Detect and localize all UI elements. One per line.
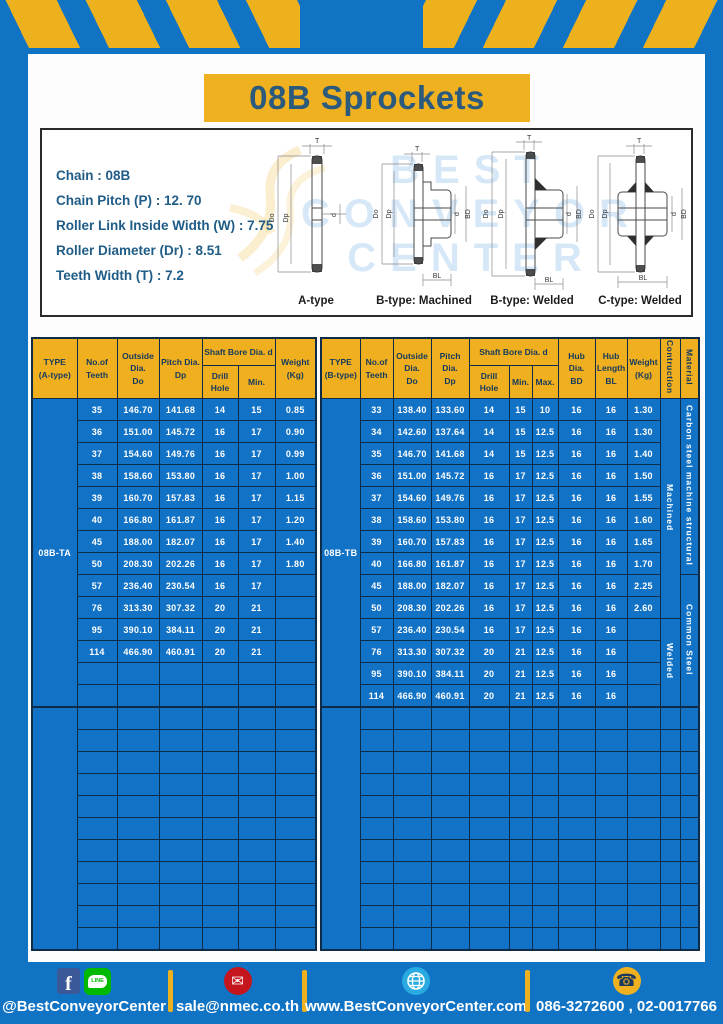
table-cell: [275, 840, 316, 862]
table-cell: [393, 862, 431, 884]
col-header-pitch-dia: Pitch Dia. Dp: [431, 338, 469, 399]
table-cell: 33: [360, 399, 393, 421]
table-cell: [431, 906, 469, 928]
table-cell: 20: [202, 641, 238, 663]
table-cell: [77, 796, 117, 818]
table-cell: [660, 730, 680, 752]
table-cell: 16: [558, 663, 595, 685]
table-cell: [558, 730, 595, 752]
table-cell: [627, 730, 660, 752]
type-group-label: 08B-TB: [321, 399, 360, 708]
table-cell: [558, 840, 595, 862]
table-cell: 15: [509, 443, 532, 465]
table-cell: 16: [595, 553, 627, 575]
table-cell: 153.80: [159, 465, 202, 487]
table-cell: 12.5: [532, 663, 558, 685]
table-cell: [77, 906, 117, 928]
table-cell: 21: [509, 641, 532, 663]
table-cell: [77, 685, 117, 708]
table-cell: 1.30: [627, 399, 660, 421]
title-banner: 08B Sprockets: [204, 74, 530, 122]
table-cell: [77, 774, 117, 796]
table-cell: 137.64: [431, 421, 469, 443]
table-cell: [660, 707, 680, 730]
footer-email: ✉ sale@nmec.co.th: [173, 966, 302, 1020]
table-cell: [509, 928, 532, 951]
table-cell: [360, 752, 393, 774]
svg-text:BD: BD: [465, 209, 472, 219]
table-cell: 12.5: [532, 531, 558, 553]
table-cell: [238, 774, 275, 796]
table-cell: 12.5: [532, 641, 558, 663]
table-cell: [469, 840, 509, 862]
email-address[interactable]: sale@nmec.co.th: [176, 998, 299, 1015]
table-cell: 16: [202, 487, 238, 509]
table-cell: 141.68: [159, 399, 202, 421]
table-cell: [202, 774, 238, 796]
col-header-type: TYPE (A-type): [32, 338, 77, 399]
table-cell: 1.50: [627, 465, 660, 487]
table-cell: 157.83: [431, 531, 469, 553]
table-cell: [159, 730, 202, 752]
table-cell: [77, 752, 117, 774]
table-cell: 16: [595, 663, 627, 685]
table-cell: 1.60: [627, 509, 660, 531]
table-cell: [238, 685, 275, 708]
material-label: Common Steel: [680, 575, 699, 708]
table-cell: 45: [360, 575, 393, 597]
table-cell: 15: [238, 399, 275, 421]
table-cell: 166.80: [117, 509, 159, 531]
table-cell: 466.90: [117, 641, 159, 663]
table-cell: 138.40: [393, 399, 431, 421]
table-cell: [275, 619, 316, 641]
table-cell: 16: [558, 421, 595, 443]
table-cell: [680, 840, 699, 862]
table-cell: 17: [509, 465, 532, 487]
table-cell: [680, 796, 699, 818]
table-cell: 1.40: [627, 443, 660, 465]
table-cell: 20: [469, 685, 509, 708]
table-cell: 36: [360, 465, 393, 487]
table-cell: [660, 928, 680, 951]
footer-social: f LINE @BestConveyorCenter: [0, 966, 168, 1020]
table-cell: 145.72: [159, 421, 202, 443]
table-cell: [159, 928, 202, 951]
table-row: 45188.00182.07161712.516162.25Common Ste…: [321, 575, 699, 597]
table-cell: [431, 774, 469, 796]
table-cell: [660, 884, 680, 906]
table-cell: [77, 707, 117, 730]
table-cell: [532, 707, 558, 730]
table-cell: [558, 774, 595, 796]
table-cell: [393, 774, 431, 796]
construction-label: Welded: [660, 619, 680, 708]
table-cell: [202, 752, 238, 774]
a-type-table: TYPE (A-type) No.of Teeth Outside Dia. D…: [31, 337, 317, 951]
table-cell: [275, 663, 316, 685]
table-cell: [595, 774, 627, 796]
table-cell: 12.5: [532, 421, 558, 443]
table-cell: 17: [509, 487, 532, 509]
table-cell: [509, 707, 532, 730]
table-cell: [660, 840, 680, 862]
table-cell: [117, 862, 159, 884]
table-cell: [393, 840, 431, 862]
table-cell: [558, 707, 595, 730]
svg-text:T: T: [527, 135, 532, 142]
table-cell: [117, 928, 159, 951]
table-cell: [238, 928, 275, 951]
table-cell: [117, 906, 159, 928]
table-cell: [532, 774, 558, 796]
sprocket-drawings: T Do Dp d A-type: [264, 134, 692, 314]
table-cell: [595, 862, 627, 884]
table-cell: 16: [595, 531, 627, 553]
table-cell: [595, 752, 627, 774]
table-cell: 202.26: [431, 597, 469, 619]
table-cell: 1.65: [627, 531, 660, 553]
table-cell: 14: [469, 443, 509, 465]
table-cell: 466.90: [393, 685, 431, 708]
drawing-c-type-welded: T Do Dp d BD: [588, 134, 692, 314]
col-header-teeth: No.of Teeth: [77, 338, 117, 399]
table-cell: [558, 884, 595, 906]
table-cell: 16: [469, 553, 509, 575]
table-cell: 146.70: [117, 399, 159, 421]
website-url[interactable]: www.BestConveyorCenter.com: [305, 998, 527, 1015]
table-cell: [275, 707, 316, 730]
table-cell: 16: [558, 509, 595, 531]
table-row: [321, 707, 699, 730]
table-cell: [360, 774, 393, 796]
spec-line: Chain Pitch (P) : 12. 70: [56, 189, 273, 214]
table-cell: [680, 774, 699, 796]
col-header-shaft-bore: Shaft Bore Dia. d: [202, 338, 275, 366]
table-cell: [532, 796, 558, 818]
table-cell: [595, 818, 627, 840]
table-cell: [159, 796, 202, 818]
table-cell: 35: [360, 443, 393, 465]
table-cell: [431, 862, 469, 884]
table-cell: 95: [360, 663, 393, 685]
mail-icon[interactable]: ✉: [224, 967, 252, 995]
table-cell: 384.11: [431, 663, 469, 685]
table-row: [321, 862, 699, 884]
globe-icon[interactable]: [402, 967, 430, 995]
table-cell: 133.60: [431, 399, 469, 421]
table-cell: [680, 707, 699, 730]
table-cell: [558, 928, 595, 951]
table-cell: [275, 575, 316, 597]
table-cell: 460.91: [159, 641, 202, 663]
table-cell: [431, 928, 469, 951]
spec-line: Roller Link Inside Width (W) : 7.75: [56, 214, 273, 239]
table-cell: [595, 707, 627, 730]
phone-icon[interactable]: ☎: [613, 967, 641, 995]
table-cell: [431, 752, 469, 774]
table-cell: [509, 840, 532, 862]
table-cell: [680, 884, 699, 906]
table-cell: 39: [77, 487, 117, 509]
table-cell: 230.54: [431, 619, 469, 641]
table-cell: [393, 707, 431, 730]
table-cell: 154.60: [117, 443, 159, 465]
table-cell: [595, 796, 627, 818]
table-cell: [275, 597, 316, 619]
table-row: [321, 884, 699, 906]
table-cell: [627, 663, 660, 685]
table-cell: 17: [509, 509, 532, 531]
col-header-outside-dia: Outside Dia. Do: [117, 338, 159, 399]
table-cell: [202, 906, 238, 928]
table-cell: 1.55: [627, 487, 660, 509]
table-cell: 160.70: [117, 487, 159, 509]
table-cell: 182.07: [159, 531, 202, 553]
table-cell: 21: [238, 619, 275, 641]
table-cell: 0.99: [275, 443, 316, 465]
table-cell: 390.10: [117, 619, 159, 641]
table-cell: [393, 752, 431, 774]
table-cell: [680, 818, 699, 840]
table-row: [32, 707, 316, 730]
table-cell: [532, 730, 558, 752]
table-cell: [202, 707, 238, 730]
table-cell: [393, 884, 431, 906]
footer-phone: ☎ 086-3272600 , 02-0017766: [530, 966, 723, 1020]
table-cell: [393, 906, 431, 928]
svg-text:d: d: [671, 212, 678, 216]
table-cell: 0.90: [275, 421, 316, 443]
table-cell: 45: [77, 531, 117, 553]
table-cell: 16: [558, 399, 595, 421]
table-row: [321, 752, 699, 774]
col-header-weight: Weight (Kg): [275, 338, 316, 399]
table-cell: 146.70: [393, 443, 431, 465]
footer-website: www.BestConveyorCenter.com: [307, 966, 525, 1020]
table-cell: [238, 752, 275, 774]
table-cell: [275, 685, 316, 708]
svg-text:Do: Do: [373, 209, 380, 218]
svg-text:BL: BL: [639, 275, 648, 282]
table-cell: 16: [558, 443, 595, 465]
table-cell: [469, 928, 509, 951]
table-cell: [469, 818, 509, 840]
table-cell: 161.87: [431, 553, 469, 575]
table-cell: 158.60: [117, 465, 159, 487]
table-row: 36151.00145.72161712.516161.50: [321, 465, 699, 487]
table-cell: [360, 796, 393, 818]
table-cell: [627, 796, 660, 818]
table-cell: [509, 774, 532, 796]
table-cell: [627, 752, 660, 774]
table-cell: 14: [469, 421, 509, 443]
col-header-hub-length: Hub Length BL: [595, 338, 627, 399]
table-cell: 16: [595, 509, 627, 531]
table-cell: 16: [595, 443, 627, 465]
drawing-a-type: T Do Dp d A-type: [264, 134, 368, 314]
table-row: 37154.60149.76161712.516161.55: [321, 487, 699, 509]
table-cell: [159, 685, 202, 708]
table-cell: 166.80: [393, 553, 431, 575]
table-cell: [509, 906, 532, 928]
table-cell: [117, 884, 159, 906]
table-cell: [77, 884, 117, 906]
table-cell: 158.60: [393, 509, 431, 531]
drawing-caption: B-type: Machined: [376, 295, 472, 307]
table-row: 08B-TB33138.40133.6014151016161.30Machin…: [321, 399, 699, 421]
b-type-table: TYPE (B-type) No.of Teeth Outside Dia. D…: [320, 337, 700, 951]
table-cell: [275, 796, 316, 818]
table-row: 40166.80161.87161712.516161.70: [321, 553, 699, 575]
table-cell: 12.5: [532, 487, 558, 509]
table-row: [321, 906, 699, 928]
table-cell: 16: [469, 465, 509, 487]
svg-text:T: T: [637, 138, 642, 145]
table-cell: 16: [202, 575, 238, 597]
col-header-drill-hole: Drill Hole: [469, 366, 509, 399]
material-label: Carbon steel machine structural: [680, 399, 699, 575]
contact-footer: f LINE @BestConveyorCenter ✉ sale@nmec.c…: [0, 962, 723, 1024]
table-cell: [509, 796, 532, 818]
table-cell: 16: [595, 465, 627, 487]
table-cell: 16: [469, 531, 509, 553]
table-cell: [275, 774, 316, 796]
svg-text:Dp: Dp: [498, 209, 505, 218]
table-cell: [627, 906, 660, 928]
drawing-b-type-welded: T Do Dp d BD: [480, 134, 584, 314]
table-row: [321, 730, 699, 752]
table-cell: [469, 796, 509, 818]
table-cell: 12.5: [532, 619, 558, 641]
table-cell: 12.5: [532, 443, 558, 465]
col-header-teeth: No.of Teeth: [360, 338, 393, 399]
table-cell: [660, 906, 680, 928]
table-cell: [627, 619, 660, 641]
table-cell: [360, 840, 393, 862]
svg-text:BD: BD: [576, 209, 583, 219]
type-group-label: 08B-TA: [32, 399, 77, 708]
table-cell: 20: [469, 663, 509, 685]
table-cell: [627, 928, 660, 951]
table-cell: 12.5: [532, 575, 558, 597]
line-app-icon[interactable]: LINE: [84, 968, 111, 995]
table-cell: 17: [238, 575, 275, 597]
table-cell: 16: [558, 597, 595, 619]
table-cell: 16: [202, 443, 238, 465]
drawing-caption: A-type: [298, 295, 334, 307]
table-cell: [117, 752, 159, 774]
table-cell: 390.10: [393, 663, 431, 685]
table-cell: [595, 928, 627, 951]
table-cell: [627, 840, 660, 862]
drawing-b-type-machined: T Do Dp d BD BL: [372, 134, 476, 314]
table-cell: [431, 818, 469, 840]
table-cell: [532, 840, 558, 862]
table-cell: [202, 730, 238, 752]
table-cell: [509, 752, 532, 774]
table-cell: [660, 862, 680, 884]
table-cell: 15: [509, 399, 532, 421]
table-cell: 17: [238, 443, 275, 465]
table-cell: [77, 663, 117, 685]
table-cell: 14: [202, 399, 238, 421]
social-handle[interactable]: @BestConveyorCenter: [2, 998, 166, 1015]
table-cell: [627, 818, 660, 840]
table-cell: 16: [558, 641, 595, 663]
table-cell: [159, 906, 202, 928]
table-cell: 17: [238, 487, 275, 509]
table-cell: 16: [595, 421, 627, 443]
table-cell: [202, 663, 238, 685]
table-cell: [660, 818, 680, 840]
table-cell: 307.32: [431, 641, 469, 663]
svg-text:Dp: Dp: [602, 209, 609, 218]
table-cell: 16: [469, 487, 509, 509]
table-row: [321, 840, 699, 862]
table-cell: 16: [595, 399, 627, 421]
table-cell: [159, 663, 202, 685]
type-group-label: [32, 707, 77, 950]
table-cell: 151.00: [117, 421, 159, 443]
table-cell: 16: [595, 597, 627, 619]
svg-text:BL: BL: [433, 273, 442, 280]
table-cell: [558, 862, 595, 884]
table-cell: [238, 663, 275, 685]
table-cell: 16: [558, 531, 595, 553]
table-cell: [77, 840, 117, 862]
table-cell: [627, 641, 660, 663]
line-badge-label: LINE: [88, 975, 107, 988]
table-cell: [202, 796, 238, 818]
phone-numbers[interactable]: 086-3272600 , 02-0017766: [536, 998, 717, 1015]
table-cell: [117, 774, 159, 796]
table-cell: [360, 818, 393, 840]
table-cell: [238, 884, 275, 906]
table-cell: [393, 730, 431, 752]
table-cell: 313.30: [117, 597, 159, 619]
table-row: [321, 928, 699, 951]
svg-text:BL: BL: [545, 277, 554, 284]
table-cell: 1.80: [275, 553, 316, 575]
table-cell: 17: [509, 553, 532, 575]
table-cell: [159, 840, 202, 862]
table-cell: 16: [469, 619, 509, 641]
table-cell: [660, 774, 680, 796]
col-header-max: Max.: [532, 366, 558, 399]
table-cell: 141.68: [431, 443, 469, 465]
table-cell: [275, 752, 316, 774]
facebook-icon[interactable]: f: [57, 968, 80, 994]
table-cell: 2.60: [627, 597, 660, 619]
table-row: 76313.30307.32202112.51616: [321, 641, 699, 663]
table-cell: 34: [360, 421, 393, 443]
table-cell: 149.76: [431, 487, 469, 509]
table-cell: [680, 730, 699, 752]
table-row: [321, 796, 699, 818]
table-cell: 16: [202, 421, 238, 443]
type-group-label: [321, 707, 360, 950]
table-cell: 38: [360, 509, 393, 531]
table-cell: 17: [509, 619, 532, 641]
hazard-stripes-right: [423, 0, 723, 48]
table-cell: [275, 928, 316, 951]
table-cell: [77, 818, 117, 840]
table-cell: 149.76: [159, 443, 202, 465]
table-cell: [202, 928, 238, 951]
catalog-sheet: 08B Sprockets BEST CONVEYOR CENTER Chain…: [28, 54, 705, 962]
table-cell: 384.11: [159, 619, 202, 641]
